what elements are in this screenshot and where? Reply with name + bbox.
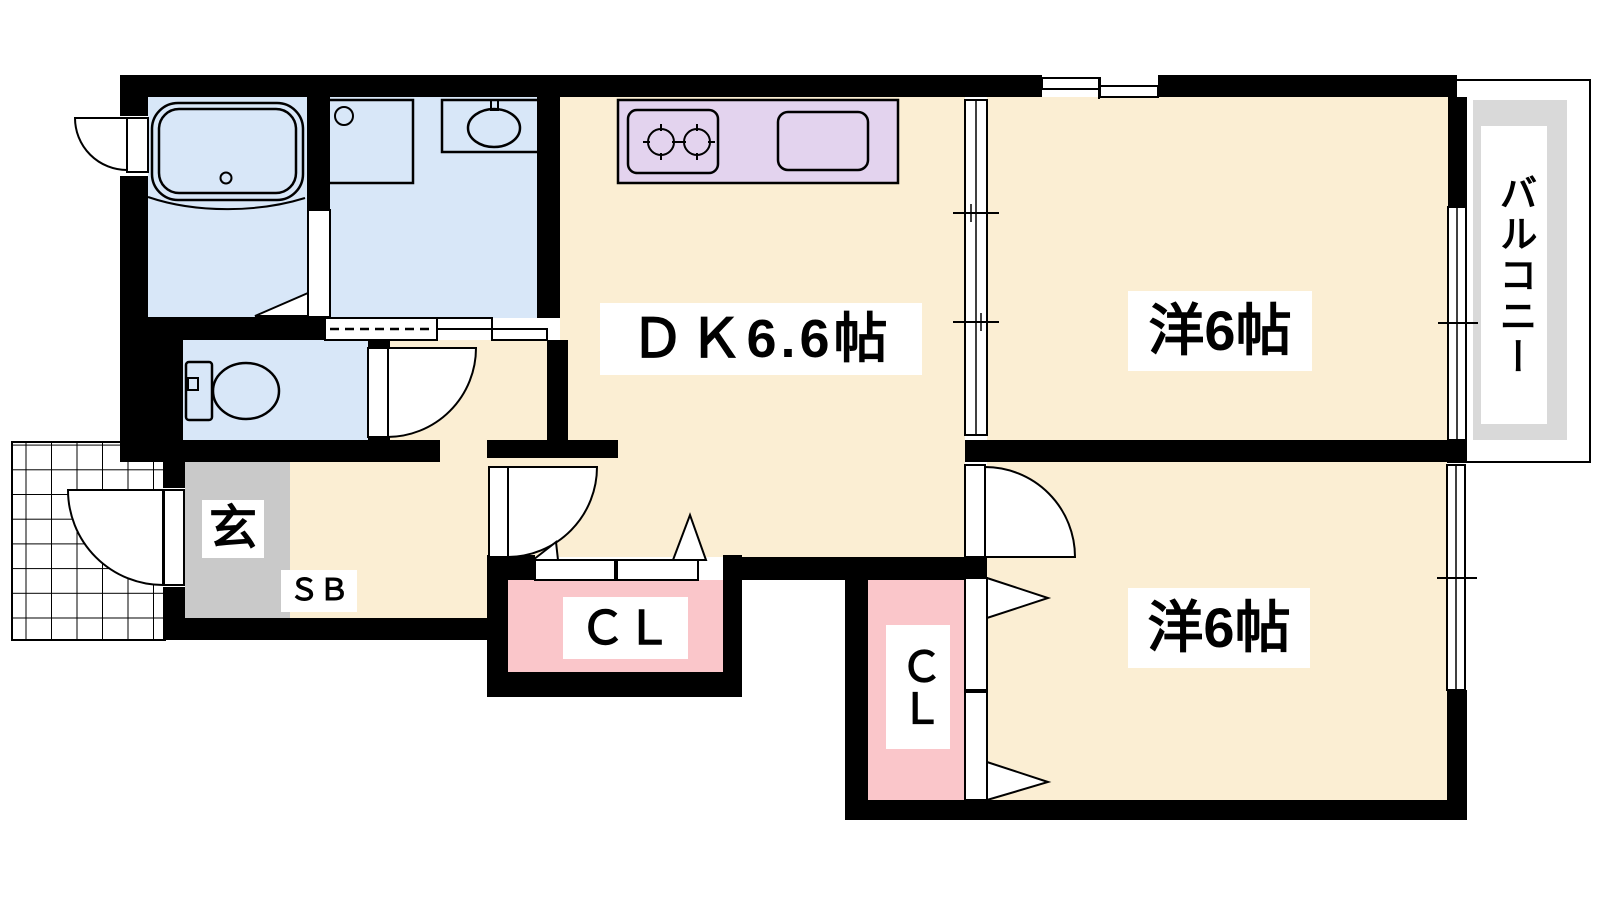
entrance-label: 玄 [202,500,264,558]
wall-closet-bottom [487,672,742,697]
closet-hallway-label: ＣＬ [563,597,688,659]
bedroom-lower-label: 洋6帖 [1128,588,1310,668]
balcony-label: バルコニー [1481,126,1547,424]
washroom-entry [325,318,548,340]
window-top [1042,75,1158,99]
wall-corridor-east [547,340,568,440]
bathroom-window [75,116,148,176]
floor-plan: ＤＫ6.6帖 洋6帖 洋6帖 バルコニー 玄 ＳＢ ＣＬ ＣＬ [0,0,1600,900]
wall-bedroom-lower-south [845,800,1467,820]
wall-right-upper [1448,97,1467,207]
wall-dk-bar [487,440,618,458]
wall-genkan-top [148,440,440,462]
wall-hall-south [163,618,487,640]
dk-label: ＤＫ6.6帖 [600,303,922,375]
wall-right-lower [1447,690,1467,800]
bedroom-upper-label: 洋6帖 [1128,291,1312,371]
wall-closet-corner [508,555,535,580]
wall-left-upper [120,75,148,335]
wall-bath-south [120,317,335,340]
closet-bedroom-label: ＣＬ [886,625,950,749]
bathtub [148,103,305,209]
kitchen-counter [618,100,898,183]
wall-top [120,75,1457,97]
bedroom-upper-floor [987,97,1448,440]
wall-rooms-divider [965,440,1467,462]
washroom-floor [330,97,537,320]
wall-mid-south [723,557,987,580]
wall-washroom-east [537,97,560,318]
shoe-box-label: ＳＢ [281,570,357,612]
toilet [186,362,279,420]
wall-closet2-left [845,578,868,820]
